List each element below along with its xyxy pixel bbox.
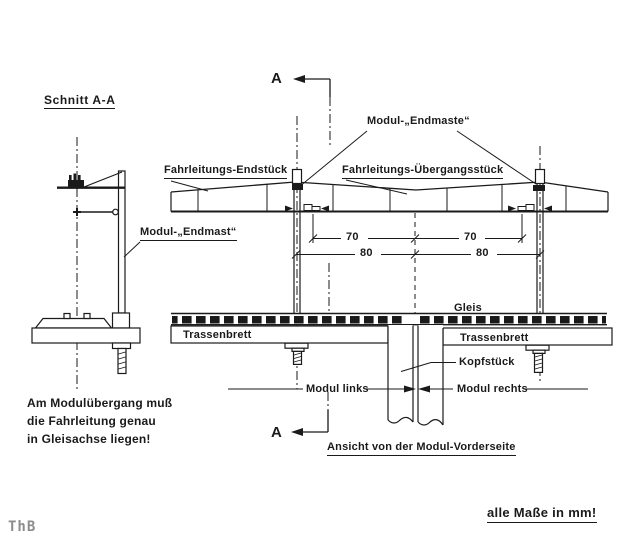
kopfstueck-label: Kopfstück (459, 356, 515, 369)
modul-rechts-label: Modul rechts (457, 383, 528, 396)
front-view-caption: Ansicht von der Modul-Vorderseite (327, 441, 516, 456)
dim-70-right: 70 (464, 231, 477, 243)
section-mast (119, 171, 126, 313)
cantilever-brace (84, 172, 122, 187)
section-marker-a-top: A (271, 70, 282, 87)
trassenbrett-left-label: Trassenbrett (183, 329, 251, 342)
endmast-label: Modul-„Endmast“ (140, 226, 237, 241)
module-transition-note: Am Modulübergang muß die Fahrleitung gen… (27, 394, 172, 448)
section-marker-a-bottom: A (271, 424, 282, 441)
technical-drawing-page: Schnitt A-A Modul-„Endmast“ Am Modulüber… (0, 0, 636, 540)
gleis-label: Gleis (454, 302, 482, 315)
dim-80-left: 80 (360, 247, 373, 259)
front-view-masts (292, 170, 545, 315)
section-view-drawing (32, 171, 140, 374)
units-note: alle Maße in mm! (487, 505, 597, 523)
drawing-linework (0, 0, 636, 540)
contact-wire-cross-section (73, 208, 81, 216)
section-insulator (68, 174, 84, 188)
dim-80-right: 80 (476, 247, 489, 259)
section-view-title: Schnitt A-A (44, 93, 115, 109)
rail-section (84, 314, 90, 319)
dimension-lines (292, 214, 544, 259)
section-base-board (32, 328, 140, 343)
mast-mounting-screw-right (526, 345, 549, 372)
trassenbrett-right-label: Trassenbrett (460, 332, 528, 345)
signature: ThB (8, 519, 36, 535)
section-screw (113, 343, 131, 374)
track (171, 314, 607, 325)
mast-insulator (533, 185, 545, 191)
mast-mounting-screw-left (285, 343, 308, 364)
roadbed-profile (36, 319, 112, 329)
dim-70-left: 70 (346, 231, 359, 243)
wire-clamps (304, 205, 534, 211)
endstueck-label: Fahrleitungs-Endstück (164, 164, 287, 179)
mast-clamp (113, 313, 130, 328)
rail-section (64, 314, 70, 319)
uebergangsstueck-label: Fahrleitungs-Übergangsstück (342, 164, 503, 179)
endmaste-label: Modul-„Endmaste“ (367, 115, 470, 128)
modul-links-label: Modul links (306, 383, 369, 396)
